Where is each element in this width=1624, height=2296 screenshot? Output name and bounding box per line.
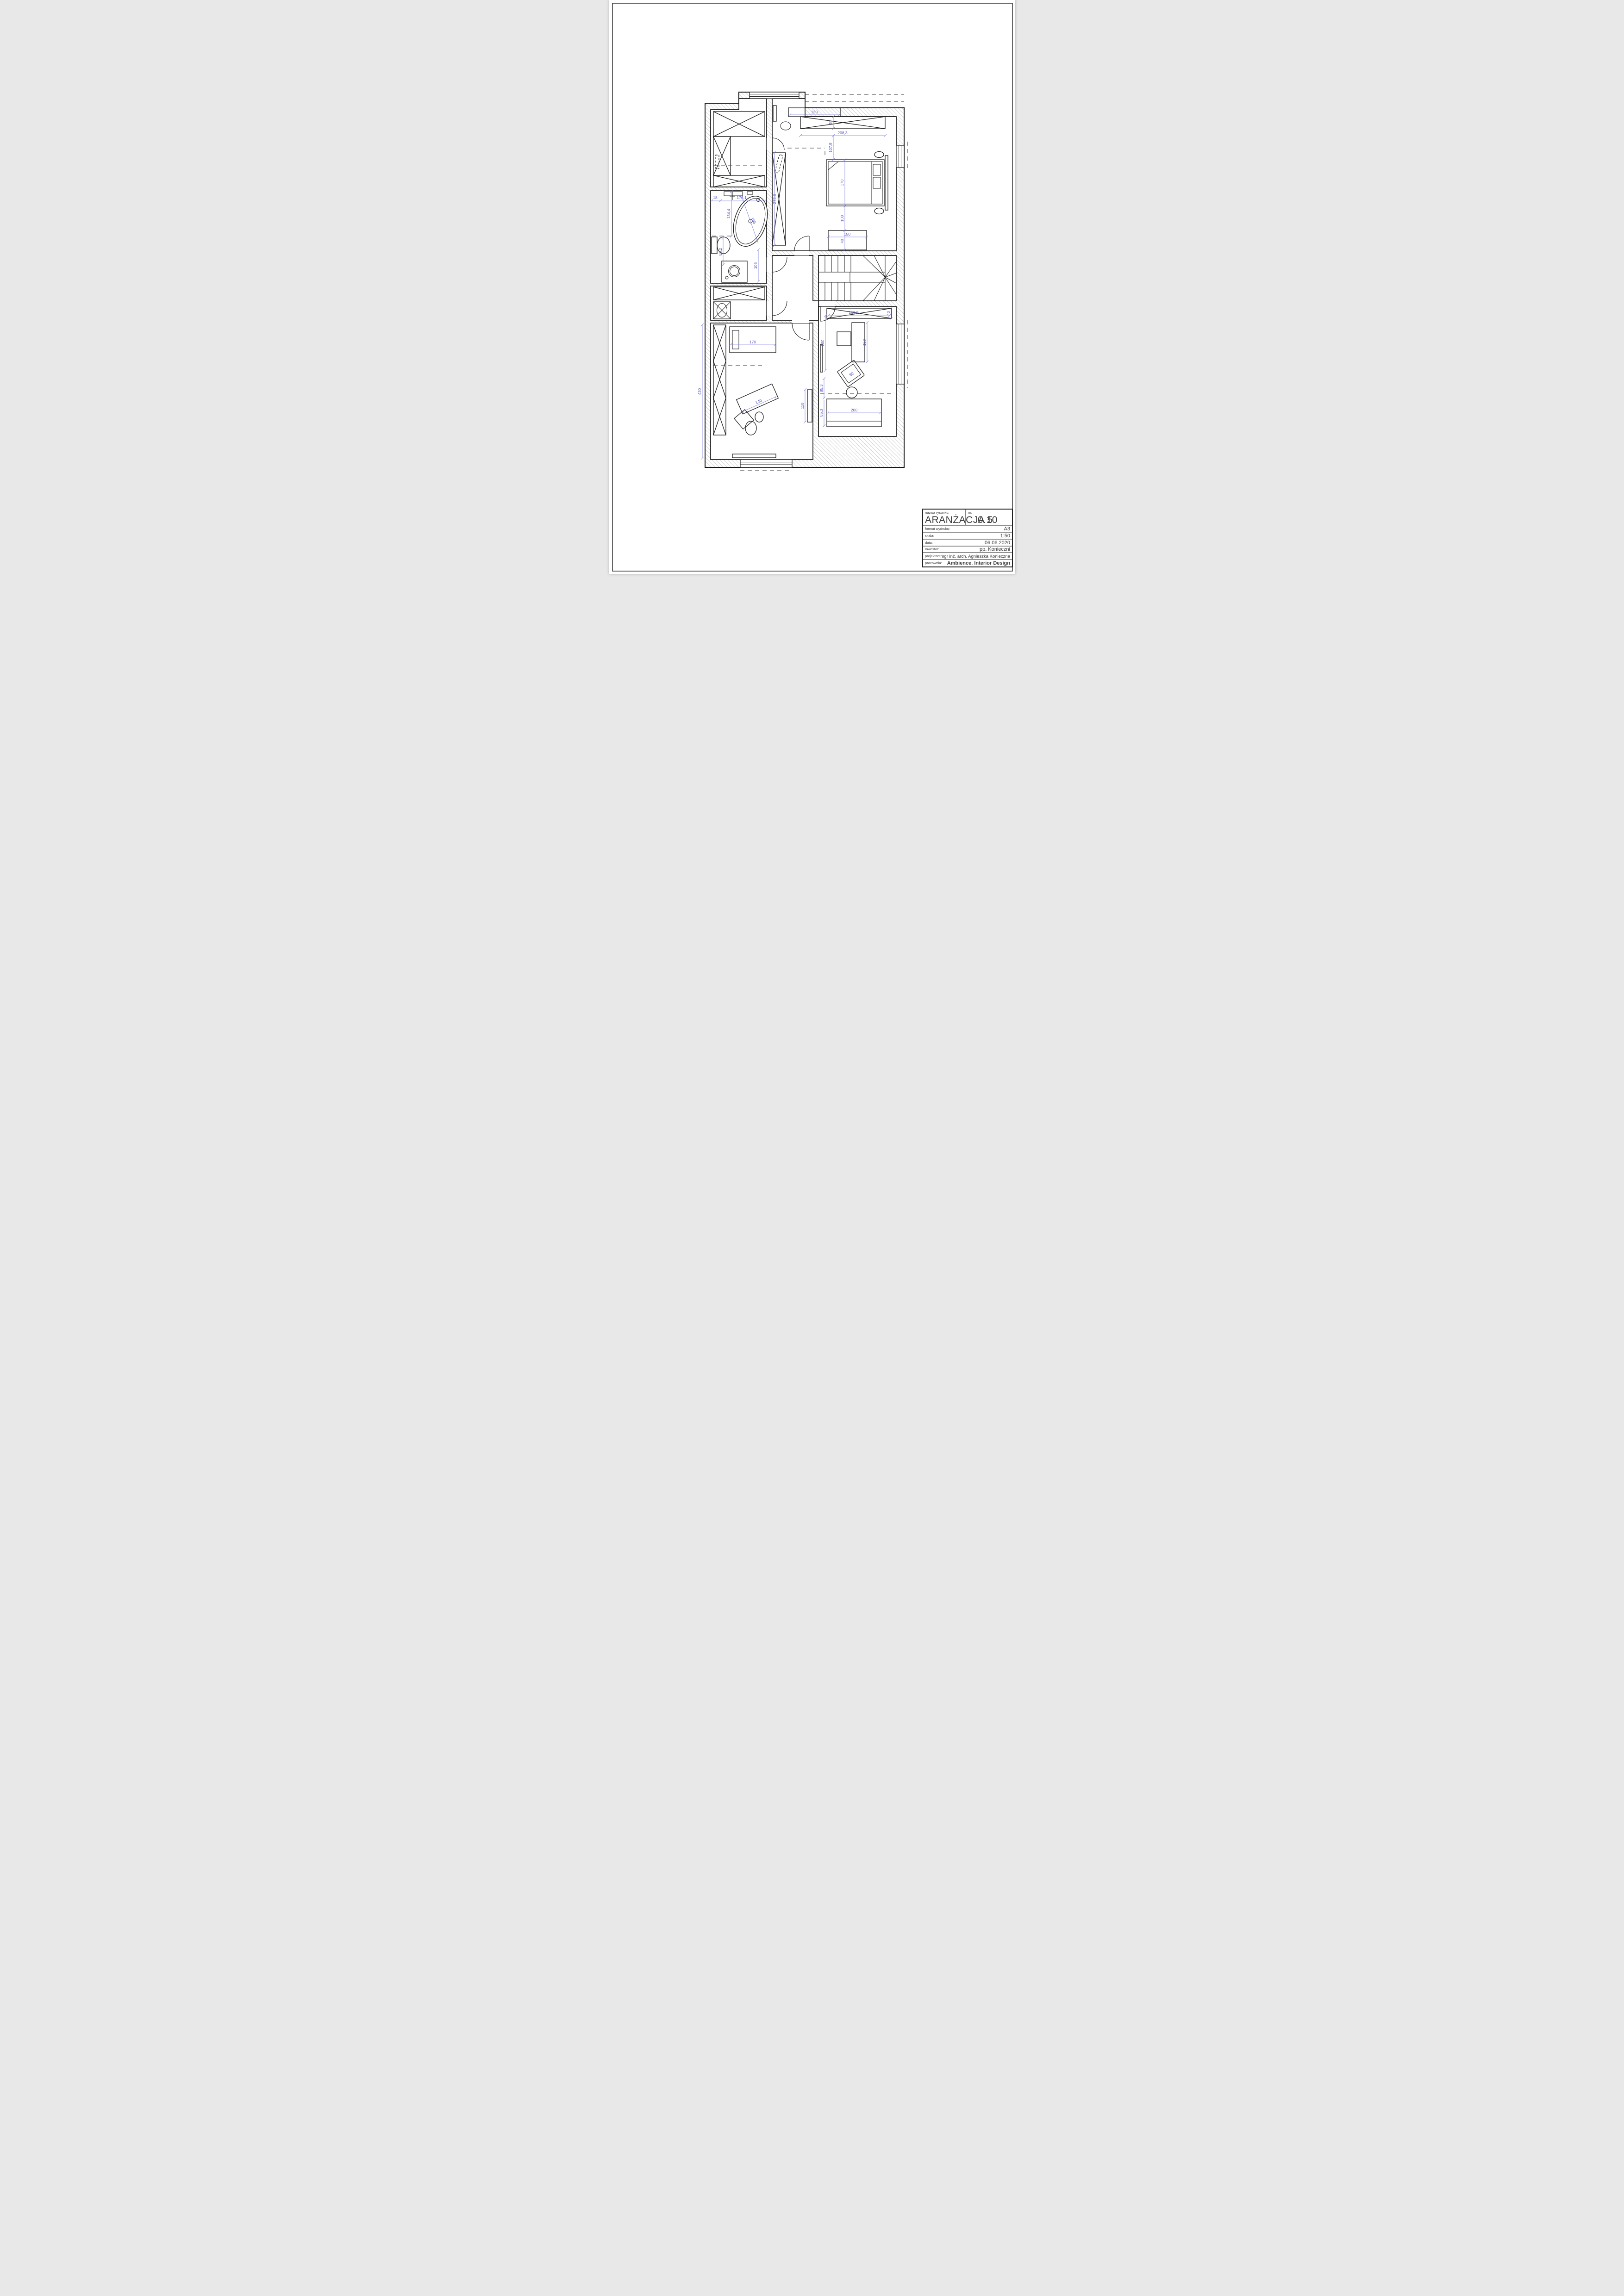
svg-text:273,6: 273,6 — [772, 194, 777, 204]
designer-label: projektant: — [925, 554, 941, 558]
format-value: A3 — [1004, 526, 1010, 532]
svg-text:86,2: 86,2 — [718, 248, 723, 255]
date-label: data: — [925, 541, 933, 545]
room-corridor — [772, 255, 818, 320]
drawing-name-label: nazwa rysunku: — [925, 510, 949, 515]
date-value: 06.06.2020 — [984, 540, 1010, 546]
window-bay-top — [750, 92, 799, 99]
svg-text:85,3: 85,3 — [819, 409, 824, 417]
room-guest — [818, 306, 896, 436]
window-kids-bottom — [740, 460, 792, 471]
svg-text:40: 40 — [886, 311, 891, 316]
svg-text:150: 150 — [862, 339, 867, 346]
dim-label: 130 — [811, 110, 817, 114]
dim-kids-room-height: 430 — [697, 324, 704, 460]
title-block: nazwa rysunku: ARANŻACJA 5 nr: 0.10 form… — [923, 509, 1012, 567]
svg-text:100: 100 — [840, 215, 844, 222]
drawing-number-value: 0.10 — [978, 515, 998, 525]
investor-label: Inwestor: — [925, 547, 939, 551]
floor-plan-drawing: 130 45 208,3 107,9 170 100 150 40 — [609, 0, 1015, 574]
svg-text:45: 45 — [828, 120, 833, 125]
window-bedroom-right — [896, 142, 907, 171]
svg-text:176,1: 176,1 — [737, 195, 747, 200]
investor-value: pp. Konieczni — [979, 547, 1010, 552]
svg-text:208,3: 208,3 — [837, 131, 848, 135]
svg-text:110: 110 — [800, 403, 805, 409]
svg-text:200: 200 — [820, 340, 825, 346]
svg-text:168,9: 168,9 — [849, 310, 859, 315]
format-label: format wydruku: — [925, 527, 950, 531]
svg-text:170: 170 — [840, 180, 844, 186]
svg-text:170: 170 — [749, 340, 756, 344]
svg-text:134,4: 134,4 — [726, 209, 731, 219]
svg-text:200: 200 — [850, 408, 857, 412]
studio-label: pracownia: — [925, 561, 942, 565]
scale-label: skala: — [925, 534, 934, 538]
svg-text:430: 430 — [697, 388, 702, 395]
drawing-sheet: 130 45 208,3 107,9 170 100 150 40 — [609, 0, 1015, 574]
scale-value: 1:50 — [1000, 533, 1010, 539]
svg-text:106: 106 — [753, 262, 758, 269]
svg-text:18: 18 — [713, 195, 718, 200]
svg-text:107,9: 107,9 — [828, 143, 833, 153]
svg-text:40: 40 — [840, 239, 844, 243]
drawing-number-label: nr: — [968, 510, 972, 515]
room-laundry — [711, 286, 767, 320]
svg-text:85,3: 85,3 — [819, 384, 824, 392]
designer-value: mgr inż. arch. Agnieszka Konieczna — [940, 554, 1010, 559]
window-guest-right — [896, 320, 907, 388]
studio-value: Ambience. Interior Design — [947, 560, 1010, 566]
